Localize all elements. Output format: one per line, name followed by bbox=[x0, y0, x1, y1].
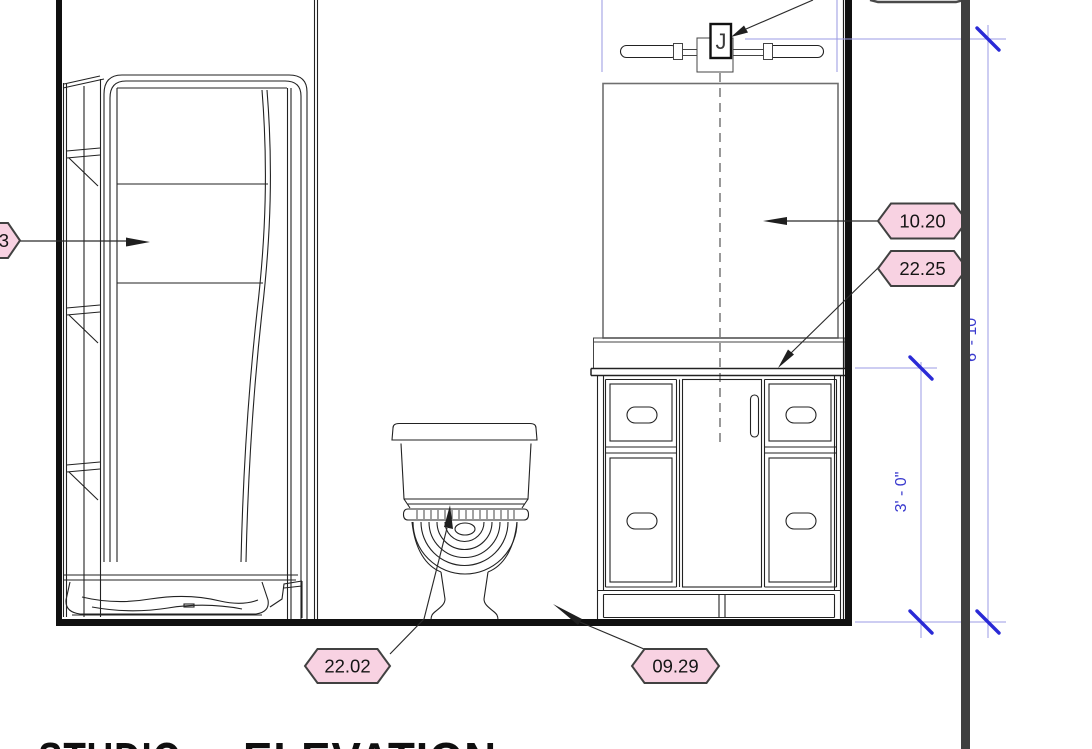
toilet-drawing bbox=[392, 424, 537, 621]
viewport-edge-bar bbox=[961, 0, 970, 749]
light-fixture: J bbox=[621, 24, 824, 72]
leader-arrow-mirror bbox=[763, 217, 787, 225]
cutoff-tag-top bbox=[870, 0, 964, 2]
keynote-tag-floor[interactable]: 09.29 bbox=[632, 649, 719, 683]
keynote-tag-partial[interactable]: 3 bbox=[0, 223, 20, 258]
elevation-drawing-viewport: J bbox=[0, 0, 1092, 749]
wall-and-floor-lines bbox=[56, 0, 852, 626]
dimension-counter-height[interactable]: 3' - 0" bbox=[893, 472, 910, 513]
leader-arrow-shower bbox=[126, 238, 150, 247]
keynote-tag-partial-label: 3 bbox=[0, 230, 9, 251]
keynote-leaders bbox=[20, 0, 878, 654]
keynote-tag-mirror[interactable]: 10.20 bbox=[878, 204, 967, 239]
junction-box-label: J bbox=[716, 29, 727, 54]
keynote-tag-countertop-label: 22.25 bbox=[899, 258, 945, 279]
leader-arrow-jbox bbox=[731, 26, 748, 38]
view-title-word-1: STUDIO bbox=[38, 733, 182, 749]
vanity-cabinet bbox=[591, 338, 847, 619]
keynote-tag-toilet-label: 22.02 bbox=[324, 656, 370, 677]
view-title: STUDIO ELEVATION bbox=[38, 733, 497, 749]
keynote-tag-countertop[interactable]: 22.25 bbox=[878, 251, 967, 286]
shower-unit bbox=[63, 0, 318, 619]
keynote-tag-floor-label: 09.29 bbox=[652, 656, 698, 677]
view-title-word-2: ELEVATION bbox=[243, 733, 497, 749]
keynote-tag-toilet[interactable]: 22.02 bbox=[305, 649, 390, 683]
keynote-tag-mirror-label: 10.20 bbox=[899, 211, 945, 232]
